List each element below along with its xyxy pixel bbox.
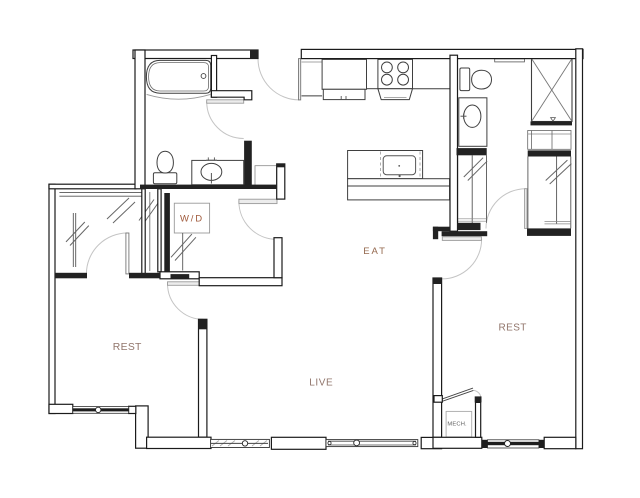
svg-text:W/D: W/D: [180, 214, 204, 225]
svg-text:REST: REST: [499, 323, 527, 334]
svg-text:LIVE: LIVE: [309, 378, 333, 389]
svg-text:EAT: EAT: [363, 246, 386, 257]
svg-text:REST: REST: [113, 342, 142, 353]
svg-text:MECH.: MECH.: [447, 422, 467, 428]
